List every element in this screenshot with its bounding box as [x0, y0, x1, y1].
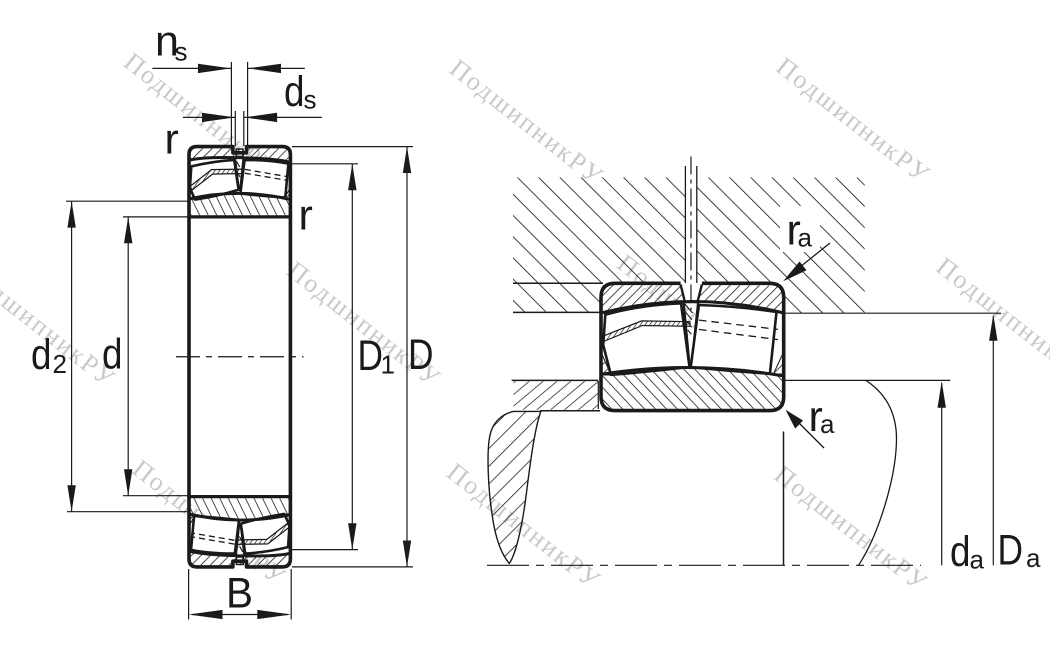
svg-text:a: a	[798, 223, 813, 253]
svg-text:D: D	[408, 331, 434, 379]
svg-text:a: a	[970, 545, 985, 575]
svg-text:s: s	[304, 85, 317, 115]
svg-text:s: s	[175, 37, 188, 67]
svg-text:B: B	[226, 570, 253, 618]
svg-text:d: d	[284, 68, 305, 116]
svg-text:a: a	[1026, 543, 1041, 573]
svg-text:1: 1	[381, 350, 395, 380]
svg-text:d: d	[102, 331, 123, 379]
svg-text:r: r	[165, 116, 179, 164]
svg-text:D: D	[998, 527, 1024, 575]
svg-text:D: D	[358, 332, 384, 380]
svg-text:2: 2	[53, 349, 67, 379]
svg-text:r: r	[299, 192, 313, 240]
svg-text:a: a	[820, 409, 835, 439]
svg-text:d: d	[31, 331, 52, 379]
svg-text:d: d	[950, 528, 971, 576]
